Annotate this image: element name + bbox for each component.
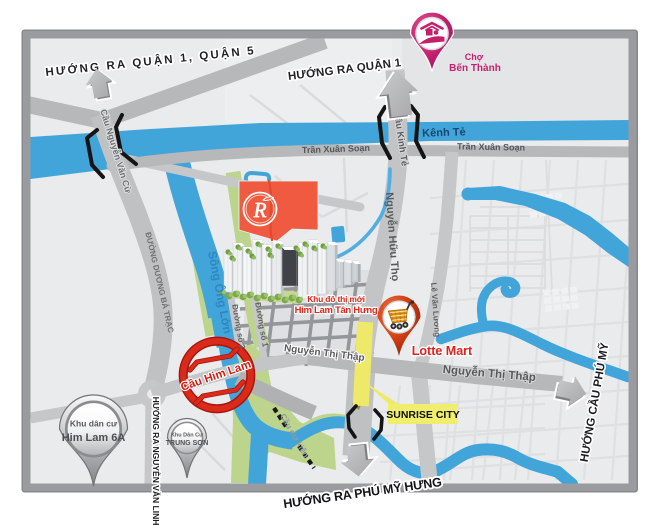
- svg-text:Trần Xuân Soạn: Trần Xuân Soạn: [457, 141, 525, 152]
- svg-text:Khu đô thị mới: Khu đô thị mới: [307, 294, 365, 304]
- svg-text:Kênh Tẻ: Kênh Tẻ: [422, 126, 466, 140]
- svg-text:R: R: [253, 198, 267, 222]
- svg-text:Chợ: Chợ: [465, 52, 484, 62]
- svg-text:Him Lam Tân Hưng: Him Lam Tân Hưng: [295, 305, 378, 316]
- svg-text:TRUNG SƠN: TRUNG SƠN: [166, 440, 209, 447]
- svg-text:Khu dân cư: Khu dân cư: [70, 418, 118, 428]
- svg-text:Bến Thành: Bến Thành: [449, 62, 501, 74]
- svg-text:Khu Dân Cư: Khu Dân Cư: [171, 432, 203, 438]
- svg-text:Lotte Mart: Lotte Mart: [412, 344, 473, 358]
- svg-text:Him Lam 6A: Him Lam 6A: [62, 432, 126, 444]
- svg-text:SUNRISE CITY: SUNRISE CITY: [386, 409, 460, 421]
- svg-text:HƯỚNG RA NGUYỄN VĂN LINH: HƯỚNG RA NGUYỄN VĂN LINH: [151, 397, 162, 526]
